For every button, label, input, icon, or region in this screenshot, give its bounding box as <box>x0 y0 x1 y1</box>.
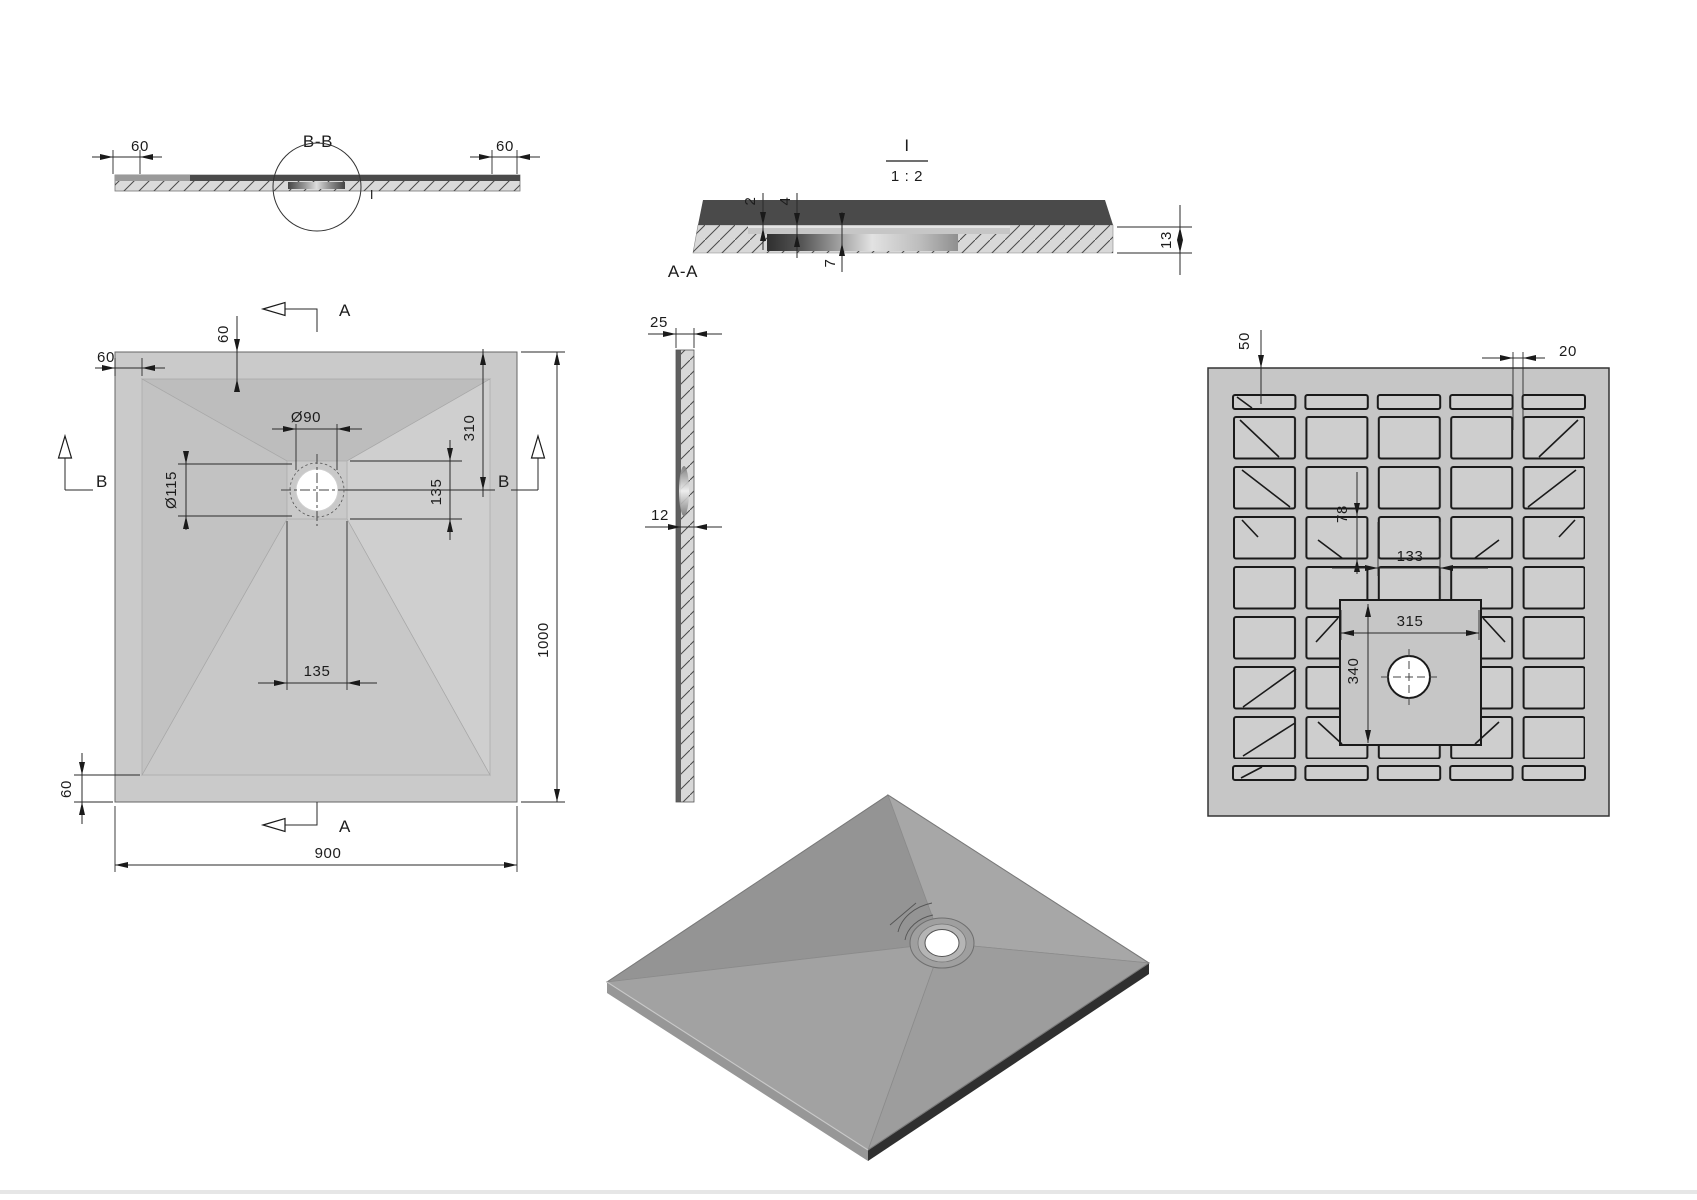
slot-pocket <box>1233 395 1295 409</box>
slot-pocket <box>1305 766 1367 780</box>
dim-side-top: 25 <box>648 314 722 348</box>
slot-pocket <box>1523 766 1585 780</box>
page-bottom-rule <box>0 1190 1697 1194</box>
section-aa-title: A-A <box>668 262 698 281</box>
side-dark-surface <box>676 350 681 802</box>
svg-text:60: 60 <box>97 349 115 366</box>
slot-pocket <box>1450 395 1512 409</box>
section-bb-title: B-B <box>303 132 333 151</box>
svg-text:133: 133 <box>1397 548 1424 565</box>
dim-detail-13: 13 <box>1117 205 1192 275</box>
dim-bb-rim-right: 60 <box>470 138 540 174</box>
detail-title: I <box>904 136 909 155</box>
svg-text:310: 310 <box>461 415 478 442</box>
svg-text:20: 20 <box>1559 343 1577 360</box>
slot-pocket <box>1305 395 1367 409</box>
slot-pocket <box>1378 395 1440 409</box>
side-body-hatch <box>681 350 694 802</box>
svg-text:A: A <box>339 817 351 836</box>
svg-text:B: B <box>498 472 510 491</box>
dim-bb-rim-left: 60 <box>92 138 162 174</box>
svg-text:135: 135 <box>428 479 445 506</box>
section-view-bb: B-B I 60 60 <box>92 132 540 231</box>
section-marker-a-bottom: A <box>263 802 351 836</box>
svg-text:315: 315 <box>1397 613 1424 630</box>
side-section-view: 25 12 <box>645 314 722 802</box>
svg-text:60: 60 <box>496 138 514 155</box>
slot-pocket <box>1378 766 1440 780</box>
bottom-view: 50 20 78 133 315 340 <box>1208 330 1609 816</box>
detail-mark-i: I <box>370 187 374 202</box>
svg-text:2: 2 <box>742 197 759 206</box>
dim-plan-width: 900 <box>115 806 517 872</box>
side-drain-bulge <box>679 466 689 516</box>
detail-view-i: I 1 : 2 2 4 7 13 A-A <box>668 136 1192 281</box>
svg-text:7: 7 <box>822 259 839 268</box>
bb-drain-channel <box>288 182 345 189</box>
svg-text:25: 25 <box>650 314 668 331</box>
svg-text:78: 78 <box>1334 505 1351 523</box>
isometric-view <box>607 795 1149 1161</box>
svg-text:60: 60 <box>215 325 232 343</box>
section-marker-a-top: A <box>263 301 351 332</box>
slot-pocket <box>1523 395 1585 409</box>
cad-drawing-page: B-B I 60 60 I 1 : 2 <box>0 0 1697 1200</box>
bb-top-surface-light <box>115 175 190 181</box>
technical-drawing: B-B I 60 60 I 1 : 2 <box>0 0 1697 1200</box>
svg-text:900: 900 <box>315 845 342 862</box>
svg-text:50: 50 <box>1236 332 1253 350</box>
svg-text:1000: 1000 <box>535 622 552 658</box>
iso-drain-hole <box>925 930 959 957</box>
svg-text:135: 135 <box>304 663 331 680</box>
plan-view: 60 60 Ø90 Ø115 310 135 <box>58 301 565 872</box>
slot-pocket <box>1450 766 1512 780</box>
svg-text:13: 13 <box>1158 231 1175 249</box>
svg-text:4: 4 <box>777 197 794 206</box>
svg-text:340: 340 <box>1345 658 1362 685</box>
detail-scale: 1 : 2 <box>891 168 923 185</box>
svg-text:B: B <box>96 472 108 491</box>
svg-text:60: 60 <box>58 780 75 798</box>
svg-text:12: 12 <box>651 507 669 524</box>
dim-plan-length: 1000 <box>521 352 565 802</box>
svg-text:Ø115: Ø115 <box>163 471 180 509</box>
section-marker-b-left: B <box>59 436 108 491</box>
svg-text:A: A <box>339 301 351 320</box>
svg-text:Ø90: Ø90 <box>291 409 321 426</box>
svg-text:60: 60 <box>131 138 149 155</box>
